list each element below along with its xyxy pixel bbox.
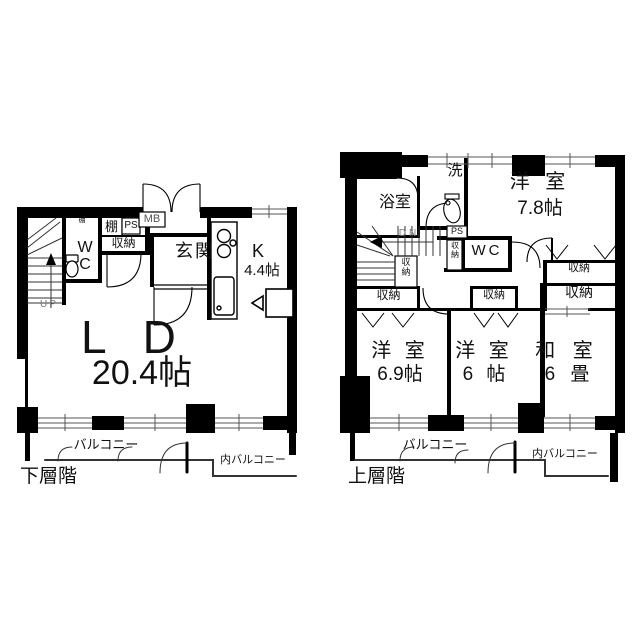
caption-upper-floor: 上層階 xyxy=(348,467,405,488)
label-upper-balcony: バルコニー xyxy=(385,438,485,452)
label-upper-western69-size: 6.9帖 xyxy=(360,365,440,386)
label-upper-ps: PS xyxy=(447,227,467,237)
label-upper-wc: WC xyxy=(464,243,510,259)
label-lower-wc: WC xyxy=(76,239,94,274)
label-upper-western6-size: 6 帖 xyxy=(446,365,522,386)
label-lower-kitchen-name: K xyxy=(244,242,272,261)
label-lower-kitchen-size: 4.4帖 xyxy=(232,263,292,279)
label-upper-western6-name: 洋 室 xyxy=(446,341,522,363)
label-lower-balcony: バルコニー xyxy=(56,438,156,452)
label-upper-storage-understairs: 収納 xyxy=(398,258,414,277)
label-upper-storage-west69: 収納 xyxy=(362,289,415,302)
label-upper-storage-right-small: 収納 xyxy=(548,263,610,275)
label-upper-western78-name: 洋 室 xyxy=(502,172,578,194)
lower-floor-stairs xyxy=(27,218,62,308)
label-upper-inner-balcony: 内バルコニー xyxy=(520,449,610,461)
label-upper-storage-west6: 収納 xyxy=(470,290,518,302)
label-lower-inner-balcony: 内バルコニー xyxy=(208,455,298,467)
label-upper-western78-size: 7.8帖 xyxy=(502,199,578,220)
label-lower-up: UP xyxy=(40,300,58,311)
label-upper-laundry: 洗 xyxy=(440,163,470,179)
label-upper-western69-name: 洋 室 xyxy=(362,341,438,363)
label-lower-shelf: 棚 xyxy=(101,220,122,234)
label-lower-mb: MB xyxy=(139,214,165,226)
label-lower-ld-size: 20.4帖 xyxy=(57,355,227,392)
label-lower-genkan: 玄関 xyxy=(167,242,223,261)
label-upper-storage-right-large: 収納 xyxy=(546,285,612,300)
label-lower-shelf-small: 棚 xyxy=(74,217,90,225)
label-lower-ps: PS xyxy=(122,221,140,232)
label-upper-dn: DN xyxy=(394,229,424,240)
washbasin-icon xyxy=(441,194,462,225)
label-upper-japanese-size: 6 畳 xyxy=(528,365,606,386)
caption-lower-floor: 下層階 xyxy=(20,467,77,488)
label-lower-storage: 収納 xyxy=(101,237,146,250)
refrigerator-icon xyxy=(252,289,293,317)
label-upper-bath: 浴室 xyxy=(371,194,419,211)
floorplan-canvas: 棚 棚 PS 収納 MB WC UP 玄関 K 4.4帖 L D 20.4帖 バ… xyxy=(0,0,639,640)
label-upper-storage-wc-side: 収納 xyxy=(449,242,461,259)
label-upper-japanese-name: 和 室 xyxy=(528,341,606,363)
